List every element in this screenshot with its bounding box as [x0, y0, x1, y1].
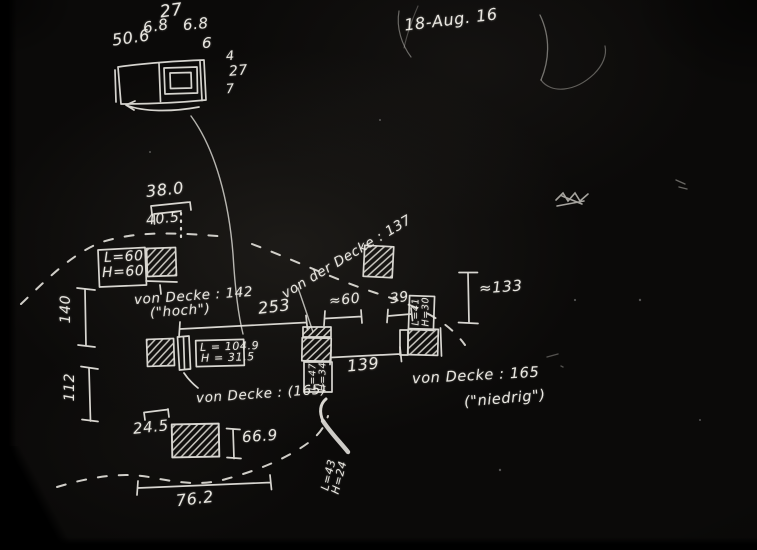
- dim-66-9-line: [227, 429, 242, 459]
- dim-133-line: [459, 273, 479, 324]
- top-sketch-side-b: 27: [228, 63, 248, 79]
- bold-arrow-stroke: [323, 421, 348, 452]
- dim-112-label: 112: [63, 373, 77, 402]
- dim-139-label: 139: [346, 355, 380, 375]
- unit-mid-left-h: H = 31.5: [201, 351, 255, 364]
- dim-66-9-label: 66.9: [242, 428, 279, 446]
- dim-38-label: 38.0: [145, 180, 185, 200]
- dim-39-label: 39: [389, 290, 410, 307]
- inner-frame: [164, 67, 198, 94]
- dim-140-label: 140: [59, 295, 73, 324]
- unit-right-label: L=41 H=30: [411, 294, 430, 330]
- chalkboard-sketch-photo: 27 6.8 6.8 50.6 6 4 27 7 18-Aug. 16 38.0…: [0, 0, 757, 550]
- hatched-box-bottom: [172, 424, 220, 458]
- top-sketch-side-a: 4: [225, 50, 235, 64]
- dim-60-line: [324, 310, 362, 326]
- photo-corner-wedge: [0, 446, 84, 550]
- photo-edge-bottom: [0, 537, 757, 550]
- hatched-box-left-2: [147, 339, 175, 367]
- dim-133-label: ≈133: [479, 278, 524, 296]
- top-sketch-seg-right: 6.8: [182, 16, 209, 33]
- unit-left-h: H=60: [102, 264, 145, 280]
- top-mini-sketch: [115, 60, 206, 111]
- unit-right-h: H=30: [421, 294, 431, 330]
- dim-24-5-label: 24.5: [132, 418, 169, 437]
- top-sketch-edge: 6: [202, 36, 212, 51]
- hatched-box-right: [408, 329, 439, 356]
- plan-line-work: [77, 202, 478, 495]
- dim-60-label: ≈60: [328, 291, 361, 308]
- dim-140-line: [77, 288, 95, 347]
- dim-112-line: [81, 367, 98, 422]
- hatched-box-left: [147, 247, 177, 276]
- narrow-panel: [178, 336, 191, 370]
- dim-40-5-label: 40.5: [145, 210, 180, 228]
- top-sketch-side-c: 7: [225, 83, 235, 97]
- hatched-strip-mid: [303, 327, 331, 337]
